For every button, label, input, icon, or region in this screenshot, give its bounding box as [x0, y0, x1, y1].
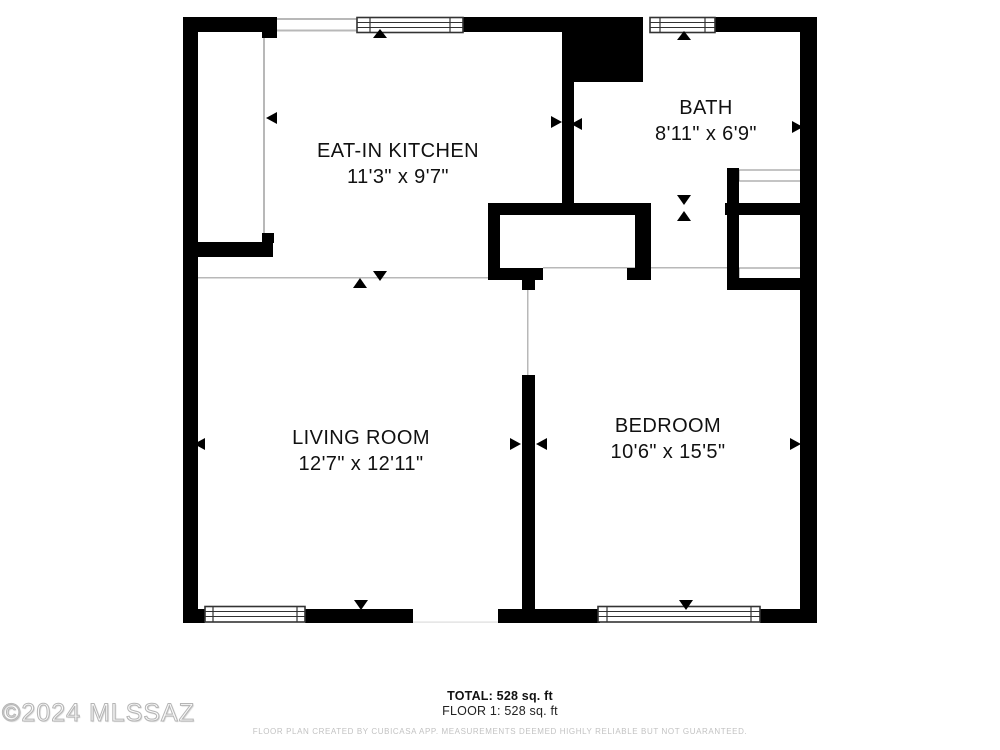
wall-bath-bottom [488, 203, 651, 215]
window-bath-top [650, 18, 715, 33]
wall-bottom-b [305, 609, 413, 623]
window-living-bottom [205, 607, 305, 623]
room-dimensions: 12'7" x 12'11" [292, 451, 430, 477]
room-boundary-lines [198, 18, 729, 623]
room-label-bedroom: BEDROOM 10'6" x 15'5" [611, 413, 726, 466]
arrow-right-icon-bedroom [790, 438, 801, 450]
wall-kitchen-bath [562, 82, 574, 215]
disclaimer-text: FLOOR PLAN CREATED BY CUBICASA APP. MEAS… [0, 727, 1000, 736]
room-label-living-room: LIVING ROOM 12'7" x 12'11" [292, 425, 430, 478]
wall-living-bedroom [522, 375, 535, 609]
floorplan-drawing [0, 0, 1000, 750]
wall-hallcloset-bottom-left [488, 268, 543, 280]
arrow-up-icon-living-top [353, 278, 367, 288]
mls-watermark: ©2024 MLSSAZ [2, 699, 195, 728]
wall-niche-bottom [183, 242, 273, 257]
room-dimensions: 8'11" x 6'9" [655, 121, 757, 147]
utility-shaft [562, 17, 643, 82]
wall-left-exterior [183, 17, 198, 623]
floorplan-canvas: EAT-IN KITCHEN 11'3" x 9'7" BATH 8'11" x… [0, 0, 1000, 750]
top-opening-line-upper [277, 18, 357, 20]
room-name: LIVING ROOM [292, 425, 430, 451]
niche-edge-line [263, 33, 265, 234]
room-name: BEDROOM [611, 413, 726, 439]
wall-top-b [463, 17, 562, 32]
top-opening-line-lower [277, 30, 357, 32]
wall-niche-stub [262, 233, 274, 243]
arrow-up-icon-bedroom-top [677, 211, 691, 221]
room-label-bath: BATH 8'11" x 6'9" [655, 95, 757, 148]
closet-shelf-upper [739, 170, 801, 181]
arrow-left-icon-bedroom [536, 438, 547, 450]
wall-top-tab [262, 17, 277, 38]
wall-bottom-d [760, 609, 817, 623]
entry-opening-line [413, 622, 498, 623]
wall-right-exterior [800, 17, 817, 623]
wall-bottom-a [183, 609, 205, 623]
arrow-left-icon-kitchen [266, 112, 277, 124]
arrow-down-icon-kitchen-bottom [373, 271, 387, 281]
wall-hallcloset-bottom-right [627, 268, 651, 280]
arrow-right-icon-kitchen [551, 116, 562, 128]
room-label-eat-in-kitchen: EAT-IN KITCHEN 11'3" x 9'7" [317, 138, 479, 191]
wall-bottom-c [498, 609, 600, 623]
arrow-down-icon-living-bottom [354, 600, 368, 610]
arrow-down-icon-bath-bottom [677, 195, 691, 205]
wall-closet-bottom [727, 278, 803, 290]
bedroom-door-opening-line [527, 290, 529, 375]
window-kitchen-top [357, 18, 463, 33]
window-bedroom-bottom [598, 607, 760, 623]
room-dimensions: 11'3" x 9'7" [317, 164, 479, 190]
room-name: BATH [655, 95, 757, 121]
room-dimensions: 10'6" x 15'5" [611, 439, 726, 465]
wall-closet-divider [727, 168, 739, 290]
wall-bedroom-door-stub [522, 280, 535, 290]
closet-shelf-lower [739, 268, 801, 279]
closet-shelves [739, 170, 801, 279]
room-name: EAT-IN KITCHEN [317, 138, 479, 164]
kitchen-living-boundary-line [198, 277, 488, 279]
arrow-right-icon-living [510, 438, 521, 450]
